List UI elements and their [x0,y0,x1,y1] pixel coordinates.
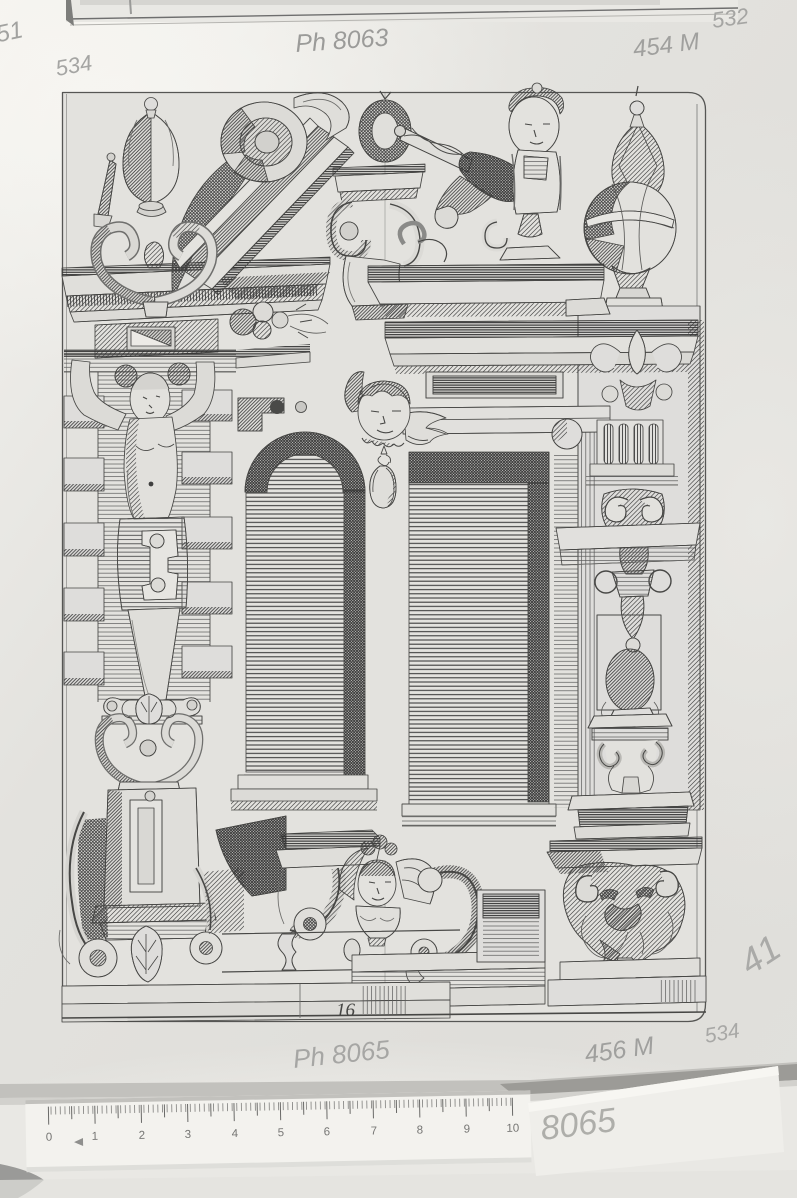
svg-text:1: 1 [92,1131,99,1143]
svg-text:532: 532 [710,3,750,33]
svg-text:4: 4 [232,1128,239,1140]
svg-text:3: 3 [185,1129,192,1141]
svg-text:0: 0 [46,1132,53,1144]
svg-text:9: 9 [464,1124,471,1136]
svg-text:5: 5 [278,1127,285,1139]
svg-text:7: 7 [371,1125,378,1137]
svg-text:8: 8 [417,1124,424,1136]
svg-text:10: 10 [506,1123,519,1135]
svg-text:6: 6 [324,1126,331,1138]
svg-text:2: 2 [139,1130,146,1142]
svg-text:16: 16 [336,1000,356,1021]
